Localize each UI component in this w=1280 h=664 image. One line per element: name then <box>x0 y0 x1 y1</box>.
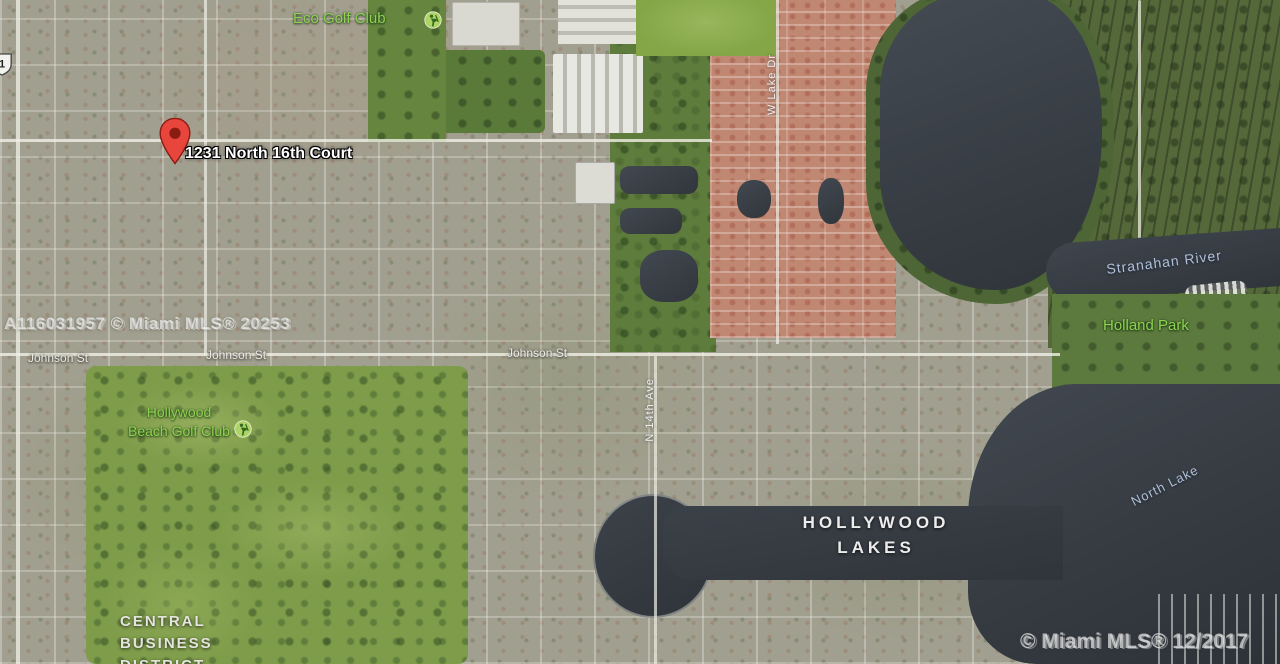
marker-address-label: 1231 North 16th Court <box>185 145 352 163</box>
hollywood-lakes-line1: HOLLYWOOD <box>790 510 962 535</box>
pond <box>737 180 771 218</box>
golf-club-icon <box>234 420 252 438</box>
johnson-st-label: Johnson St <box>206 348 266 362</box>
golf-club-icon <box>424 11 442 29</box>
w-lake-dr-label: W Lake Dr <box>766 54 778 115</box>
pond <box>818 178 844 224</box>
us-route-1-shield-icon: 1 <box>0 52 13 77</box>
building-block <box>575 162 615 204</box>
w-lake-dr-road <box>776 0 779 344</box>
n-14th-ave-label: N 14th Ave <box>644 378 656 442</box>
mls-watermark-right: © Miami MLS® 12/2017 <box>1020 630 1248 654</box>
svg-text:1: 1 <box>0 59 5 71</box>
n-16th-court-road <box>204 0 207 356</box>
hbgc-line2: Beach Golf Club <box>104 422 254 441</box>
eco-golf-club-label: Eco Golf Club <box>293 10 386 27</box>
hollywood-lakes-line2: LAKES <box>790 535 962 560</box>
marsh-trail <box>1138 0 1141 242</box>
central-business-district-label: CENTRAL BUSINESS DISTRICT <box>120 611 236 664</box>
hollywood-lakes-label: HOLLYWOOD LAKES <box>790 510 962 560</box>
building-block <box>452 2 520 46</box>
pond <box>620 166 698 194</box>
johnson-st-label: Johnson St <box>28 351 88 365</box>
cbd-line3: DISTRICT <box>120 655 236 664</box>
holland-park-label: Holland Park <box>1103 317 1189 334</box>
satellite-map[interactable]: 1 Eco Golf Club Hollywood Beach Golf Clu… <box>0 0 1280 664</box>
johnson-st-label: Johnson St <box>507 346 567 360</box>
mls-watermark-left: A116031957 © Miami MLS® 20253 <box>4 314 290 334</box>
building-block <box>558 0 642 44</box>
green-field-region <box>636 0 776 56</box>
cbd-line2: BUSINESS <box>120 633 236 655</box>
cross-street-road <box>0 139 712 142</box>
pond <box>640 250 698 302</box>
hbgc-line1: Hollywood <box>104 403 254 422</box>
cbd-line1: CENTRAL <box>120 611 236 633</box>
building-block <box>553 54 643 133</box>
pond <box>620 208 682 234</box>
holland-park-region <box>1052 294 1280 396</box>
hollywood-beach-golf-club-label: Hollywood Beach Golf Club <box>104 403 254 441</box>
